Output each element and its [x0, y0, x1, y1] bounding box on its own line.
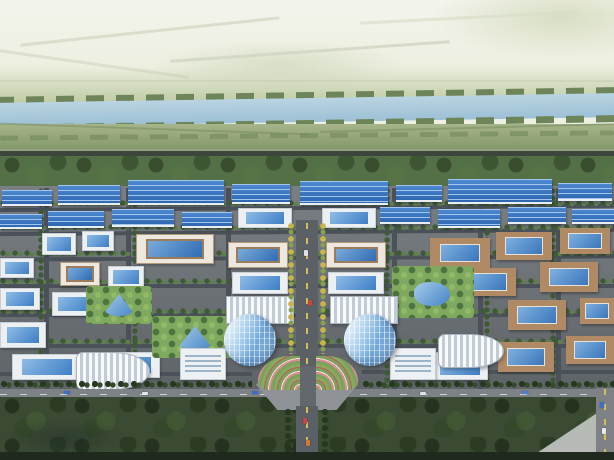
office-building	[0, 288, 40, 310]
courtyard-building	[540, 262, 598, 292]
factory-building	[396, 185, 442, 202]
factory-building	[128, 180, 224, 205]
vehicle	[64, 391, 70, 394]
office-building	[228, 242, 288, 268]
office-building	[322, 208, 376, 228]
factory-building	[448, 179, 552, 204]
factory-building	[2, 190, 52, 206]
office-building	[108, 266, 144, 288]
courtyard-building	[430, 238, 490, 268]
street	[300, 366, 316, 410]
podium-building	[180, 348, 226, 380]
vehicle	[304, 250, 308, 256]
office-building	[42, 233, 76, 255]
courtyard-building	[508, 300, 566, 330]
vehicle	[600, 402, 604, 408]
vehicle	[303, 418, 307, 424]
factory-building	[232, 184, 290, 204]
courtyard-building	[566, 336, 614, 364]
podium-building	[390, 348, 436, 380]
central-boulevard	[296, 220, 318, 370]
dense-tree-row	[0, 380, 252, 389]
factory-building	[380, 207, 430, 224]
office-building	[136, 234, 214, 264]
glass-tower	[344, 314, 396, 366]
office-building	[82, 231, 114, 251]
office-building	[0, 258, 34, 278]
vehicle	[306, 440, 310, 446]
factory-building	[48, 211, 104, 228]
central-boulevard	[596, 388, 614, 460]
vehicle	[308, 300, 312, 306]
factory-building	[508, 207, 566, 224]
office-building	[328, 272, 384, 294]
factory-building	[438, 209, 500, 228]
courtyard-building	[498, 342, 554, 372]
office-building	[326, 242, 386, 268]
office-building	[232, 272, 288, 294]
golden-tree-median	[319, 222, 328, 354]
vehicle	[252, 391, 258, 394]
office-building	[238, 208, 292, 228]
louvered-roof-building	[438, 334, 504, 368]
office-building	[12, 354, 82, 380]
vehicle	[420, 392, 426, 395]
factory-building	[112, 209, 174, 227]
pond	[414, 282, 450, 306]
courtyard-building	[496, 232, 552, 260]
dense-tree-row	[362, 380, 614, 389]
vehicle	[142, 392, 148, 395]
pale-field-patch	[430, 0, 614, 60]
glass-tower	[224, 314, 276, 366]
factory-building	[558, 183, 612, 201]
vehicle	[602, 428, 606, 434]
courtyard-building	[560, 228, 610, 254]
factory-building	[300, 181, 388, 205]
image-bottom-edge	[0, 452, 614, 460]
courtyard-building	[580, 298, 614, 324]
factory-building	[0, 214, 42, 229]
office-building	[60, 262, 100, 286]
factory-building	[572, 209, 614, 224]
vehicle	[522, 391, 528, 394]
aerial-rendering-industrial-park	[0, 0, 614, 460]
golden-tree-median	[287, 222, 296, 354]
factory-building	[58, 185, 120, 205]
factory-building	[182, 212, 232, 228]
office-building	[0, 322, 46, 348]
